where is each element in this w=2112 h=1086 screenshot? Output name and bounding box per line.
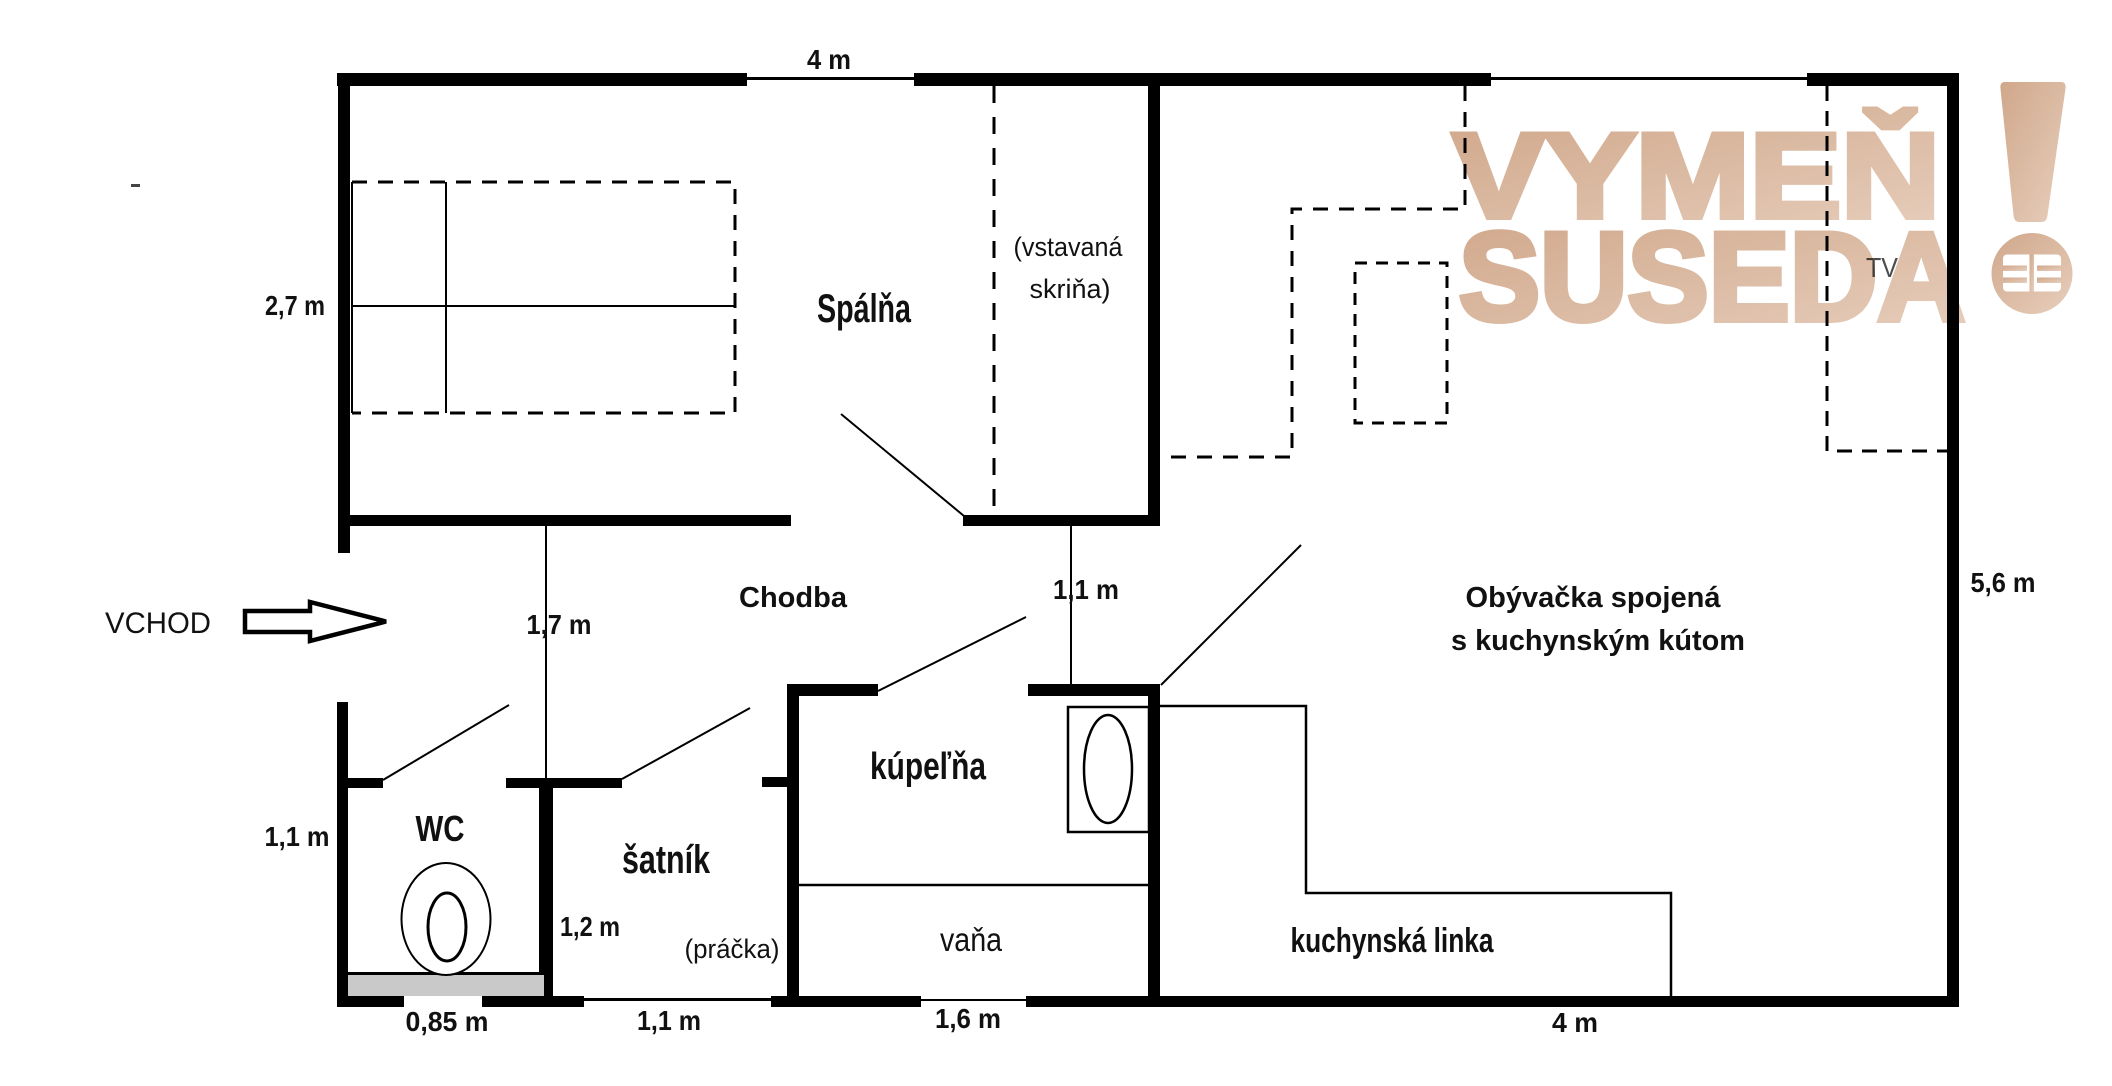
svg-text:skriňa): skriňa) (1030, 274, 1111, 304)
svg-text:s kuchynským kútom: s kuchynským kútom (1451, 625, 1745, 657)
svg-text:5,6 m: 5,6 m (1971, 567, 2036, 598)
svg-text:SUSEDA: SUSEDA (1459, 208, 1965, 347)
svg-text:0,85 m: 0,85 m (406, 1006, 489, 1037)
svg-text:1,1 m: 1,1 m (637, 1005, 701, 1036)
svg-text:1,2 m: 1,2 m (560, 911, 620, 942)
svg-text:1,6 m: 1,6 m (935, 1003, 1001, 1034)
svg-text:Spálňa: Spálňa (817, 287, 912, 331)
svg-text:WC: WC (416, 808, 465, 849)
svg-text:šatník: šatník (622, 838, 711, 882)
svg-text:VCHOD: VCHOD (105, 607, 211, 640)
svg-text:1,7 m: 1,7 m (527, 609, 592, 640)
svg-text:kuchynská linka: kuchynská linka (1291, 922, 1495, 960)
svg-text:Obývačka spojená: Obývačka spojená (1466, 582, 1722, 614)
svg-text:2,7 m: 2,7 m (265, 290, 325, 321)
svg-text:4 m: 4 m (807, 44, 851, 75)
svg-text:vaňa: vaňa (940, 921, 1003, 958)
svg-text:1,1 m: 1,1 m (1053, 574, 1119, 605)
svg-text:(práčka): (práčka) (685, 934, 780, 964)
svg-text:Chodba: Chodba (739, 582, 848, 614)
svg-text:(vstavaná: (vstavaná (1014, 232, 1124, 262)
svg-text:1,1 m: 1,1 m (265, 821, 330, 852)
svg-text:kúpeľňa: kúpeľňa (870, 746, 987, 788)
svg-text:4 m: 4 m (1552, 1007, 1598, 1038)
